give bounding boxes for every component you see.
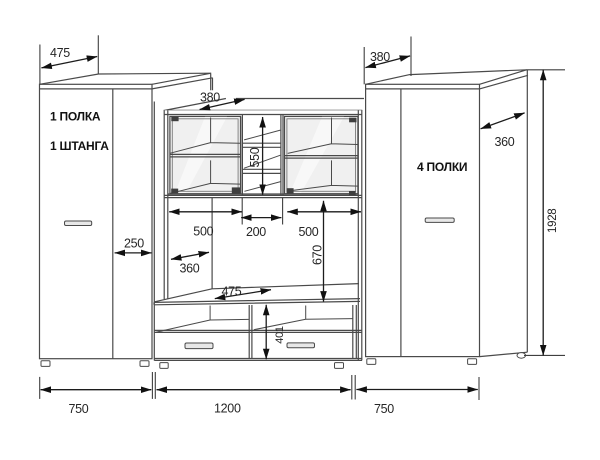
svg-text:475: 475 — [50, 46, 70, 60]
svg-text:500: 500 — [193, 225, 213, 239]
svg-text:380: 380 — [370, 50, 390, 64]
svg-text:1928: 1928 — [547, 209, 559, 233]
svg-text:550: 550 — [248, 147, 262, 167]
svg-text:1 ШТАНГА: 1 ШТАНГА — [50, 139, 109, 153]
svg-text:200: 200 — [246, 225, 266, 239]
svg-text:360: 360 — [495, 135, 515, 149]
svg-text:380: 380 — [200, 90, 220, 104]
svg-text:4 ПОЛКИ: 4 ПОЛКИ — [417, 160, 467, 174]
svg-text:750: 750 — [69, 402, 89, 416]
svg-text:1200: 1200 — [214, 402, 241, 416]
svg-text:1 ПОЛКА: 1 ПОЛКА — [50, 110, 101, 124]
svg-text:750: 750 — [374, 402, 394, 416]
svg-text:250: 250 — [124, 237, 144, 251]
svg-text:475: 475 — [222, 285, 242, 299]
svg-text:670: 670 — [310, 245, 324, 265]
svg-text:500: 500 — [299, 225, 319, 239]
svg-text:401: 401 — [274, 326, 286, 344]
svg-text:360: 360 — [180, 261, 200, 275]
